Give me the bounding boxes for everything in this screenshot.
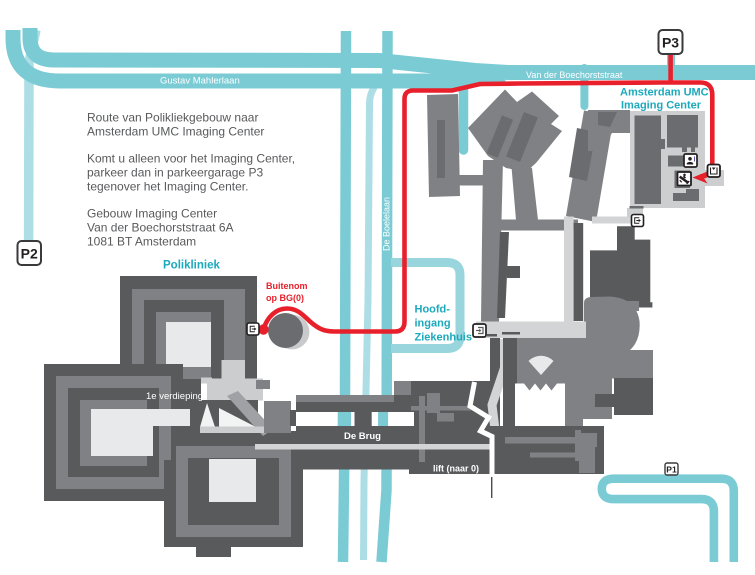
- svg-text:Imaging Center: Imaging Center: [621, 100, 702, 112]
- svg-text:De Boelelaan: De Boelelaan: [382, 197, 392, 251]
- svg-text:parkeer dan in parkeergarage P: parkeer dan in parkeergarage P3: [87, 166, 263, 180]
- svg-text:Amsterdam UMC Imaging Center: Amsterdam UMC Imaging Center: [87, 125, 264, 139]
- svg-text:Amsterdam UMC: Amsterdam UMC: [620, 87, 709, 99]
- svg-text:De Brug: De Brug: [344, 431, 381, 442]
- svg-text:1081 BT Amsterdam: 1081 BT Amsterdam: [87, 235, 196, 249]
- svg-text:op BG(0): op BG(0): [266, 293, 304, 303]
- svg-text:lift (naar 0): lift (naar 0): [433, 464, 479, 474]
- svg-text:1e verdieping: 1e verdieping: [146, 391, 203, 402]
- svg-text:Komt u alleen voor het Imaging: Komt u alleen voor het Imaging Center,: [87, 152, 295, 166]
- svg-text:Van der Boechorststraat 6A: Van der Boechorststraat 6A: [87, 221, 234, 235]
- svg-text:Route van Polikliekgebouw naar: Route van Polikliekgebouw naar: [87, 111, 258, 125]
- svg-text:P1: P1: [666, 464, 677, 474]
- svg-text:Polikliniek: Polikliniek: [163, 260, 220, 272]
- svg-text:tegenover het Imaging Center.: tegenover het Imaging Center.: [87, 180, 248, 194]
- svg-text:P2: P2: [21, 246, 38, 262]
- svg-text:Ziekenhuis: Ziekenhuis: [415, 332, 472, 344]
- svg-text:Hoofd-: Hoofd-: [415, 304, 451, 316]
- svg-text:Buitenom: Buitenom: [266, 281, 308, 291]
- svg-text:ingang: ingang: [415, 318, 451, 330]
- svg-text:Van der Boechorststraat: Van der Boechorststraat: [526, 70, 623, 80]
- svg-text:Gebouw Imaging Center: Gebouw Imaging Center: [87, 207, 217, 221]
- svg-text:Gustav Mahlerlaan: Gustav Mahlerlaan: [160, 76, 240, 87]
- svg-text:P3: P3: [662, 35, 679, 51]
